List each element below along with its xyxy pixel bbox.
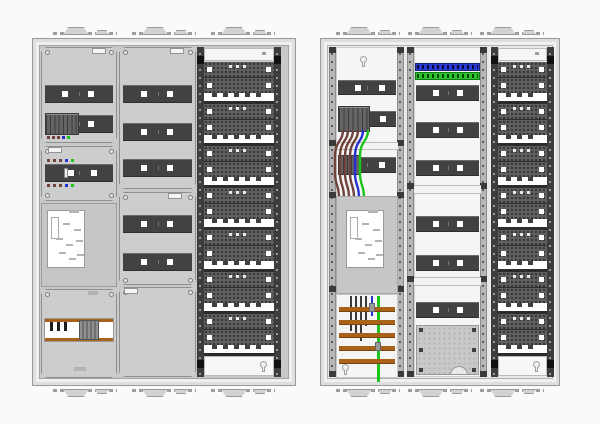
busbar — [339, 346, 395, 351]
perf-dot-white — [520, 149, 523, 152]
cover-clip — [168, 193, 182, 199]
perf-mount-square — [266, 235, 271, 240]
perf-mount-square — [266, 209, 271, 214]
din-rail-mount-square — [167, 221, 173, 227]
perf-dot-white — [513, 107, 516, 110]
perf-panel-row — [204, 288, 274, 303]
cable-comb-teeth — [506, 177, 539, 181]
wire-mark-brown — [59, 159, 62, 162]
perf-dot-white — [243, 107, 246, 110]
perf-mount-square — [501, 193, 506, 198]
perf-divider-line — [498, 161, 547, 162]
screw-head — [109, 149, 114, 154]
din-rail-center-tick — [158, 166, 159, 170]
perf-mount-square — [501, 251, 506, 256]
perf-dot-white — [513, 233, 516, 236]
din-rail-mount-square — [457, 307, 463, 313]
perf-divider-line — [498, 287, 547, 288]
perf-mount-square — [207, 293, 212, 298]
wire-mark-blue — [65, 184, 68, 187]
perf-dot-white — [520, 65, 523, 68]
cover-panel — [119, 192, 196, 285]
perf-mount-square — [539, 251, 544, 256]
rack-screw-block — [547, 360, 554, 368]
plate-screw — [419, 368, 423, 372]
plate-notch-cutout — [450, 366, 468, 375]
frame-joint-block — [480, 371, 487, 377]
frame-profile-holes — [331, 49, 333, 375]
perf-panel-row — [204, 120, 274, 135]
perf-divider-line — [204, 245, 274, 246]
rack-screw-block — [547, 56, 554, 64]
meter-plate-slot — [66, 244, 73, 246]
perf-mount-square — [539, 335, 544, 340]
perf-mount-square — [539, 293, 544, 298]
perf-dot-white — [527, 275, 530, 278]
frame-joint-block — [329, 47, 336, 53]
cable-comb-teeth — [506, 93, 539, 97]
din-rail-center-tick — [79, 171, 80, 175]
frame-joint-block — [407, 47, 414, 53]
terminal-prong — [50, 322, 53, 331]
perf-mount-square — [539, 319, 544, 324]
din-rail-center-tick — [158, 260, 159, 264]
wire-mark-brown — [59, 184, 62, 187]
meter-plate-slot — [376, 254, 383, 256]
din-rail-center-tick — [448, 91, 449, 95]
wire-fan — [334, 126, 404, 204]
din-rail-center-tick — [448, 222, 449, 226]
perf-panel-row — [204, 104, 274, 119]
cable-comb-teeth — [506, 261, 539, 265]
perf-dot-white — [520, 107, 523, 110]
perf-mount-square — [207, 67, 212, 72]
perf-dot-white — [229, 317, 232, 320]
earth-terminal-screws — [417, 74, 478, 78]
perf-mount-square — [266, 319, 271, 324]
perf-mount-square — [501, 125, 506, 130]
perf-dot-white — [520, 317, 523, 320]
perf-mount-square — [266, 277, 271, 282]
terminal-prong — [64, 322, 67, 331]
cover-clip — [48, 147, 62, 153]
meter-plate-slot — [373, 229, 380, 231]
frame-joint-block — [480, 47, 487, 53]
cable-comb-teeth — [506, 219, 539, 223]
perf-dot-white — [520, 233, 523, 236]
perf-divider-line — [204, 77, 274, 78]
perf-dot-white — [236, 65, 239, 68]
din-rail-center-tick — [158, 130, 159, 134]
perf-dot-white — [513, 275, 516, 278]
din-rail-mount-square — [433, 127, 439, 133]
wire-mark-brown — [57, 136, 60, 139]
cable-comb-teeth — [212, 135, 266, 139]
screw-head — [45, 193, 50, 198]
perf-mount-square — [501, 277, 506, 282]
frame-profile-holes — [409, 49, 411, 375]
perf-dot-white — [229, 191, 232, 194]
din-rail-mount-square — [457, 90, 463, 96]
meter-plate-slot — [56, 238, 63, 240]
perf-divider-line — [204, 287, 274, 288]
perf-divider-line — [498, 203, 547, 204]
rack-screw-block — [491, 360, 498, 368]
screw-head — [109, 292, 114, 297]
perf-panel-row — [204, 188, 274, 203]
perf-mount-square — [266, 193, 271, 198]
screw-head — [45, 292, 50, 297]
meter-plate-slot — [368, 258, 375, 260]
perf-mount-square — [266, 109, 271, 114]
rack-screw-block — [274, 56, 281, 64]
screw-head — [109, 50, 114, 55]
din-rail-mount-square — [62, 91, 68, 97]
perf-panel-row — [204, 230, 274, 245]
perf-mount-square — [266, 335, 271, 340]
cover-panel — [119, 287, 196, 377]
perf-mount-square — [501, 319, 506, 324]
din-rail-mount-square — [88, 91, 94, 97]
cable-comb-teeth — [212, 261, 266, 265]
din-rail-center-tick — [448, 128, 449, 132]
perf-divider-line — [498, 77, 547, 78]
keyhole-slot — [535, 367, 538, 372]
din-rail-center-tick — [79, 122, 80, 126]
din-rail-mount-square — [457, 127, 463, 133]
busbar — [339, 333, 395, 338]
din-rail-mount-square — [433, 90, 439, 96]
meter-plate-window — [350, 217, 358, 239]
meter-plate-slot — [74, 229, 81, 231]
cable-comb-teeth — [506, 345, 539, 349]
din-rail-center-tick — [158, 92, 159, 96]
screw-head — [109, 193, 114, 198]
perf-panel-row — [204, 78, 274, 93]
wire-mark-brown — [47, 136, 50, 139]
perf-dot-white — [236, 317, 239, 320]
din-rail-mount-square — [141, 91, 147, 97]
cable-comb-teeth — [212, 177, 266, 181]
perf-dot-white — [513, 317, 516, 320]
perf-dot-white — [229, 275, 232, 278]
perf-panel-row — [204, 62, 274, 77]
perf-dot-white — [236, 149, 239, 152]
meter-plate-slot — [59, 252, 66, 254]
din-rail-mount-square — [457, 221, 463, 227]
frame-profile-holes — [482, 49, 484, 375]
terminal-rib-block — [79, 320, 99, 340]
meter-plate-slot — [355, 238, 362, 240]
section-label-smudge — [88, 291, 98, 295]
din-rail-mount-square — [141, 259, 147, 265]
keyhole-slot — [262, 367, 265, 372]
din-rail-mount-square — [433, 260, 439, 266]
perf-mount-square — [207, 151, 212, 156]
perf-dot-white — [527, 107, 530, 110]
busbar — [339, 359, 395, 364]
section-divider — [414, 185, 481, 194]
plate-screw — [419, 328, 423, 332]
perf-divider-line — [204, 203, 274, 204]
busbar-clamp — [369, 303, 375, 312]
screw-head — [45, 50, 50, 55]
perf-panel-row — [204, 330, 274, 345]
rack-top-strip — [498, 48, 547, 61]
perf-mount-square — [266, 125, 271, 130]
perf-mount-square — [539, 125, 544, 130]
din-rail-mount-square — [167, 259, 173, 265]
perf-mount-square — [207, 335, 212, 340]
cable-comb-teeth — [506, 135, 539, 139]
wire-mark-brown — [47, 159, 50, 162]
perf-mount-square — [539, 209, 544, 214]
perf-panel-row — [204, 146, 274, 161]
perf-dot-white — [236, 191, 239, 194]
perf-mount-square — [207, 193, 212, 198]
perf-mount-square — [501, 109, 506, 114]
breaker-module-block — [45, 113, 79, 135]
din-rail-mount-square — [355, 85, 361, 91]
perf-mount-square — [207, 167, 212, 172]
perf-mount-square — [501, 67, 506, 72]
screw-head — [188, 195, 193, 200]
perf-panel-row — [204, 162, 274, 177]
din-rail-mount-square — [433, 221, 439, 227]
perf-mount-square — [266, 251, 271, 256]
cable-comb-teeth — [212, 303, 266, 307]
perf-mount-square — [501, 209, 506, 214]
perf-dot-white — [243, 317, 246, 320]
perf-mount-square — [501, 151, 506, 156]
frame-joint-block — [407, 183, 414, 189]
screw-head — [123, 50, 128, 55]
plate-screw — [472, 348, 476, 352]
perf-dot-white — [229, 149, 232, 152]
perf-mount-square — [266, 67, 271, 72]
rack-side-rail-holes — [199, 49, 201, 375]
perf-mount-square — [207, 251, 212, 256]
frame-joint-block — [397, 286, 404, 292]
rack-screw-block — [197, 56, 204, 64]
busbar — [339, 320, 395, 325]
perf-mount-square — [266, 167, 271, 172]
wire-mark-brown — [47, 184, 50, 187]
perf-divider-line — [204, 119, 274, 120]
din-rail-center-tick — [367, 86, 368, 90]
meter-plate-window — [51, 217, 59, 239]
perf-mount-square — [207, 109, 212, 114]
perf-dot-white — [520, 275, 523, 278]
wire-mark-green — [71, 184, 74, 187]
din-rail-center-tick — [448, 261, 449, 265]
meter-plate-slot — [362, 223, 369, 225]
perf-dot-white — [229, 65, 232, 68]
frame-joint-block — [407, 276, 414, 282]
perf-dot-white — [229, 233, 232, 236]
perf-divider-line — [498, 329, 547, 330]
meter-plate-slot — [365, 244, 372, 246]
din-rail-mount-square — [457, 165, 463, 171]
cover-clip — [92, 48, 106, 54]
frame-joint-block — [397, 371, 404, 377]
rack-top-mark — [535, 52, 539, 55]
din-rail-mount-square — [433, 165, 439, 171]
din-rail-mount-square — [457, 260, 463, 266]
cable-comb-teeth — [506, 303, 539, 307]
din-rail-mount-square — [167, 165, 173, 171]
busbar-feed-wire-black — [355, 296, 357, 336]
rack-top-mark — [262, 52, 266, 55]
frame-joint-block — [480, 276, 487, 282]
perf-dot-white — [243, 149, 246, 152]
perf-mount-square — [207, 277, 212, 282]
perf-mount-square — [539, 67, 544, 72]
rack-side-rail-holes — [493, 49, 495, 375]
wire-mark-green — [67, 136, 70, 139]
perf-mount-square — [501, 235, 506, 240]
wire-mark-green — [71, 159, 74, 162]
rack-screw-block — [491, 56, 498, 64]
rack-side-rail-holes — [276, 49, 278, 375]
perf-mount-square — [501, 293, 506, 298]
perf-dot-white — [513, 149, 516, 152]
perf-dot-white — [520, 191, 523, 194]
perf-dot-white — [243, 65, 246, 68]
din-rail-mount-square — [167, 91, 173, 97]
perf-panel-row — [204, 272, 274, 287]
wire-mark-blue — [65, 159, 68, 162]
perf-dot-white — [527, 149, 530, 152]
cover-clip — [124, 288, 138, 294]
perf-mount-square — [539, 235, 544, 240]
screw-head — [123, 195, 128, 200]
din-rail-mount-square — [141, 129, 147, 135]
frame-joint-block — [329, 371, 336, 377]
perf-divider-line — [204, 161, 274, 162]
din-rail-center-tick — [448, 308, 449, 312]
perf-dot-white — [243, 233, 246, 236]
keyhole-slot — [362, 62, 365, 67]
meter-plate-slot — [77, 254, 84, 256]
meter-plate-tab — [69, 210, 79, 213]
perf-divider-line — [498, 245, 547, 246]
plate-screw — [472, 328, 476, 332]
perf-mount-square — [539, 109, 544, 114]
perf-mount-square — [501, 167, 506, 172]
perforated-mounting-plate — [416, 325, 479, 375]
perf-mount-square — [539, 277, 544, 282]
perf-mount-square — [207, 83, 212, 88]
cover-clip — [170, 48, 184, 54]
screw-head — [188, 278, 193, 283]
perf-dot-white — [527, 317, 530, 320]
perf-dot-white — [513, 65, 516, 68]
perf-mount-square — [539, 167, 544, 172]
screw-head — [123, 278, 128, 283]
cable-comb-teeth — [212, 345, 266, 349]
din-rail-mount-square — [167, 129, 173, 135]
perf-mount-square — [207, 209, 212, 214]
cable-comb-teeth — [212, 93, 266, 97]
perf-panel-row — [204, 204, 274, 219]
meter-plate-tab — [368, 210, 378, 213]
perf-dot-white — [236, 107, 239, 110]
meter-plate-slot — [358, 252, 365, 254]
din-rail-center-tick — [448, 166, 449, 170]
perf-mount-square — [539, 193, 544, 198]
perf-dot-white — [527, 233, 530, 236]
din-rail-mount-square — [141, 165, 147, 171]
terminal-prong — [57, 322, 60, 331]
plate-screw — [472, 368, 476, 372]
perf-mount-square — [501, 83, 506, 88]
din-rail-mount-square — [88, 121, 94, 127]
rail-lever — [64, 168, 68, 178]
perf-dot-white — [513, 191, 516, 194]
din-rail-mount-square — [91, 170, 97, 176]
cable-comb-teeth — [212, 219, 266, 223]
neutral-terminal-screws — [417, 65, 478, 69]
din-rail-mount-square — [380, 116, 386, 122]
diagram-canvas — [0, 0, 600, 424]
meter-plate-slot — [76, 240, 83, 242]
perf-dot-white — [236, 275, 239, 278]
perf-dot-white — [236, 233, 239, 236]
wire-mark-brown — [53, 184, 56, 187]
keyhole-slot — [344, 370, 347, 375]
perf-mount-square — [207, 319, 212, 324]
perf-mount-square — [207, 125, 212, 130]
frame-joint-block — [329, 286, 336, 292]
perf-dot-white — [527, 65, 530, 68]
din-rail-mount-square — [68, 170, 74, 176]
perf-dot-white — [229, 107, 232, 110]
perf-mount-square — [266, 293, 271, 298]
perf-mount-square — [539, 151, 544, 156]
section-divider — [414, 277, 481, 286]
perf-divider-line — [498, 119, 547, 120]
perf-mount-square — [539, 83, 544, 88]
screw-head — [188, 290, 193, 295]
wire-mark-blue — [62, 136, 65, 139]
perf-dot-white — [243, 191, 246, 194]
perf-mount-square — [501, 335, 506, 340]
rack-side-rail-holes — [549, 49, 551, 375]
frame-joint-block — [407, 371, 414, 377]
rack-screw-block — [197, 360, 204, 368]
section-label-smudge — [74, 367, 86, 371]
screw-head — [188, 50, 193, 55]
perf-panel-row — [204, 246, 274, 261]
wire-mark-brown — [53, 159, 56, 162]
perf-divider-line — [204, 329, 274, 330]
perf-mount-square — [266, 83, 271, 88]
meter-plate-slot — [63, 223, 70, 225]
din-rail-center-tick — [79, 92, 80, 96]
din-rail-center-tick — [158, 222, 159, 226]
perf-mount-square — [207, 235, 212, 240]
frame-joint-block — [480, 183, 487, 189]
busbar — [339, 307, 395, 312]
busbar-clamp — [375, 342, 381, 351]
din-rail-mount-square — [141, 221, 147, 227]
din-rail-mount-square — [379, 85, 385, 91]
wire-mark-brown — [52, 136, 55, 139]
perf-dot-white — [243, 275, 246, 278]
meter-plate-slot — [375, 240, 382, 242]
perf-panel-row — [204, 314, 274, 329]
